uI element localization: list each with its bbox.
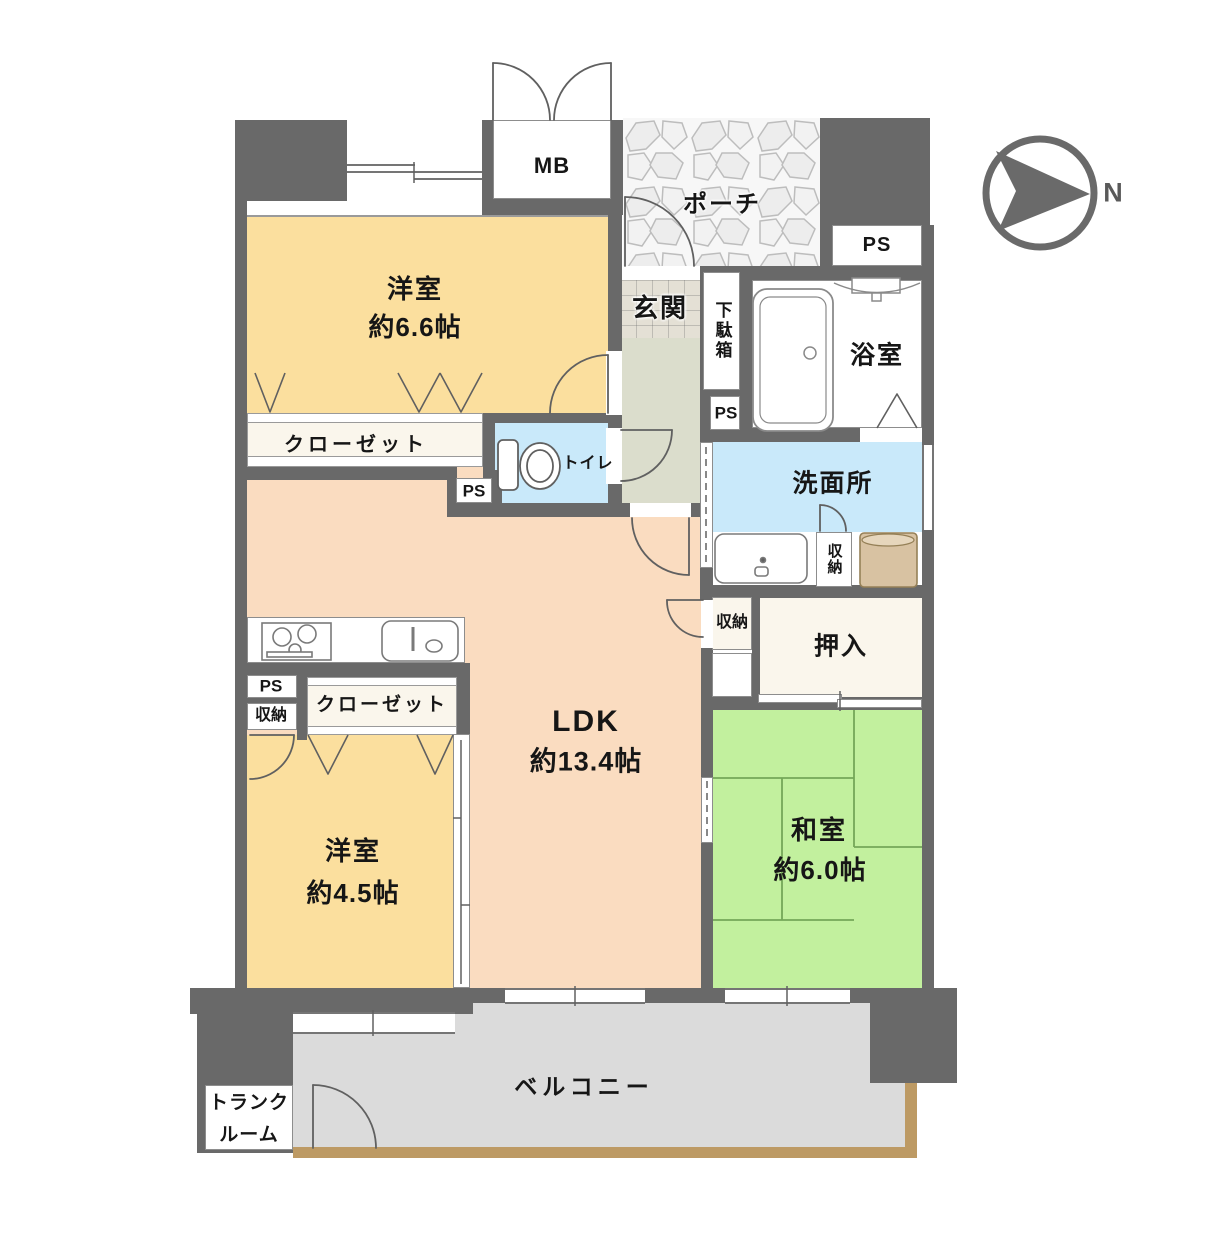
label-japanese-name: 和室 [791, 817, 847, 843]
label-closet1: クローゼット [284, 435, 428, 455]
label-storage-hall: 収納 [716, 615, 748, 631]
kitchen-sink-icon [382, 621, 458, 661]
label-storage-kitchen: 収納 [255, 708, 287, 724]
label-porch: ポーチ [683, 193, 761, 217]
label-getabako: 下駄箱 [714, 301, 731, 361]
label-ps-upper: PS [863, 235, 892, 255]
vanity-sink-icon [715, 534, 807, 583]
label-ldk-size: 約13.4帖 [530, 749, 643, 776]
floor-plan-canvas: MB ポーチ PS 玄関 下駄箱 浴室 PS 洋室 約6.6帖 クローゼット P… [0, 0, 1206, 1256]
toilet-icon [498, 440, 560, 490]
label-trunk-line2: ルーム [219, 1126, 278, 1145]
bathtub-icon [753, 289, 833, 431]
stove-icon [262, 623, 331, 660]
label-western1-name: 洋室 [387, 276, 443, 302]
door-arc-icons [250, 63, 846, 1148]
label-storage-washroom: 収納 [827, 543, 842, 575]
label-ldk-name: LDK [552, 707, 620, 737]
label-trunk-line1: トランク [209, 1094, 289, 1113]
label-closet2: クローゼット [316, 696, 448, 715]
bath-counter-icon [834, 278, 920, 301]
label-balcony: ベルコニー [514, 1076, 654, 1099]
label-genkan: 玄関 [632, 295, 688, 321]
label-ps-entrance: PS [715, 405, 738, 422]
label-japanese-size: 約6.0帖 [773, 857, 866, 883]
label-ps-toilet: PS [463, 483, 486, 500]
label-meter-box: MB [534, 155, 570, 177]
label-western1-size: 約6.6帖 [368, 314, 461, 340]
label-washroom: 洗面所 [792, 472, 873, 497]
label-bathroom: 浴室 [850, 344, 904, 369]
label-toilet: トイレ [562, 456, 613, 472]
label-oshiire: 押入 [814, 635, 868, 660]
washing-machine-icon [860, 533, 917, 587]
compass-icon [986, 139, 1094, 247]
label-western2-size: 約4.5帖 [306, 880, 399, 906]
label-western2-name: 洋室 [325, 838, 381, 864]
label-ps-kitchen: PS [260, 678, 283, 695]
label-north: N [1103, 180, 1123, 207]
fixtures-overlay [0, 0, 1206, 1256]
